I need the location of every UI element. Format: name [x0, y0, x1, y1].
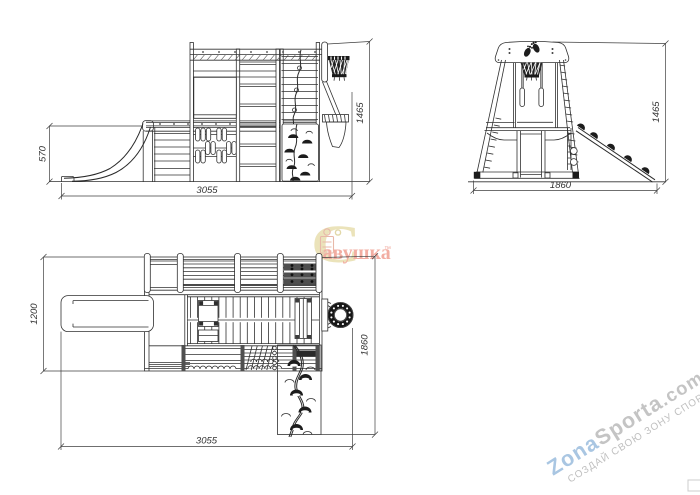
svg-text:1465: 1465: [651, 101, 662, 123]
svg-text:1860: 1860: [550, 180, 572, 191]
svg-text:™: ™: [384, 246, 391, 253]
svg-text:авушка: авушка: [323, 242, 391, 264]
svg-text:570: 570: [38, 145, 49, 162]
svg-text:3055: 3055: [196, 436, 218, 447]
svg-text:1200: 1200: [29, 303, 40, 325]
svg-text:3055: 3055: [196, 185, 218, 196]
svg-text:1465: 1465: [355, 102, 366, 124]
svg-text:1860: 1860: [360, 334, 371, 356]
